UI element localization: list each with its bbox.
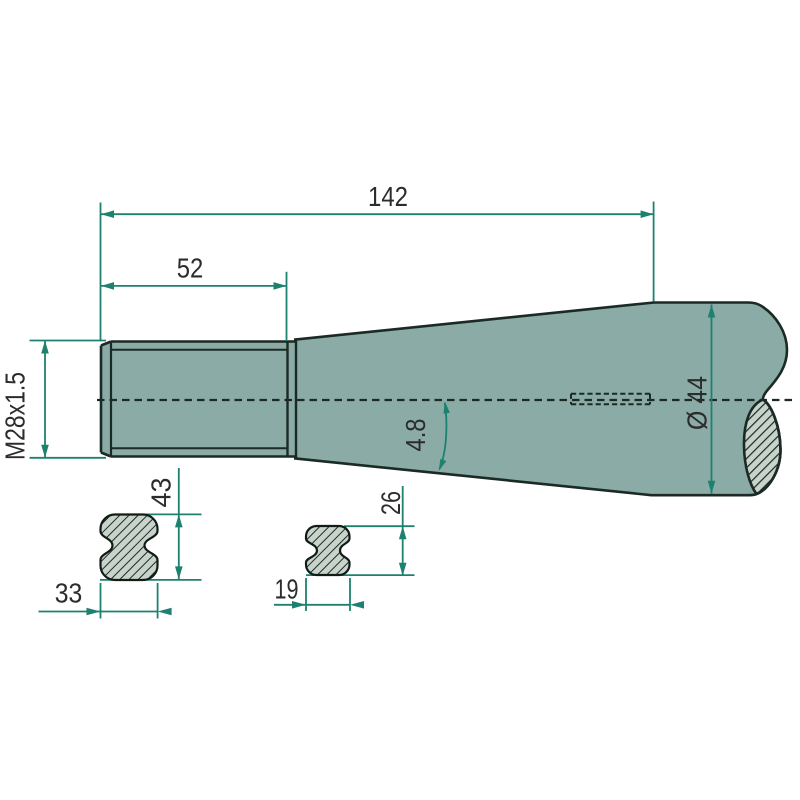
svg-text:33: 33 bbox=[55, 578, 83, 609]
svg-text:43: 43 bbox=[146, 478, 177, 508]
svg-text:4.8: 4.8 bbox=[400, 419, 431, 452]
svg-text:19: 19 bbox=[275, 574, 299, 605]
svg-text:Ø 44: Ø 44 bbox=[682, 376, 713, 430]
svg-text:52: 52 bbox=[177, 253, 204, 284]
svg-text:142: 142 bbox=[368, 181, 408, 212]
svg-text:26: 26 bbox=[376, 491, 406, 515]
svg-text:M28x1.5: M28x1.5 bbox=[0, 372, 31, 460]
